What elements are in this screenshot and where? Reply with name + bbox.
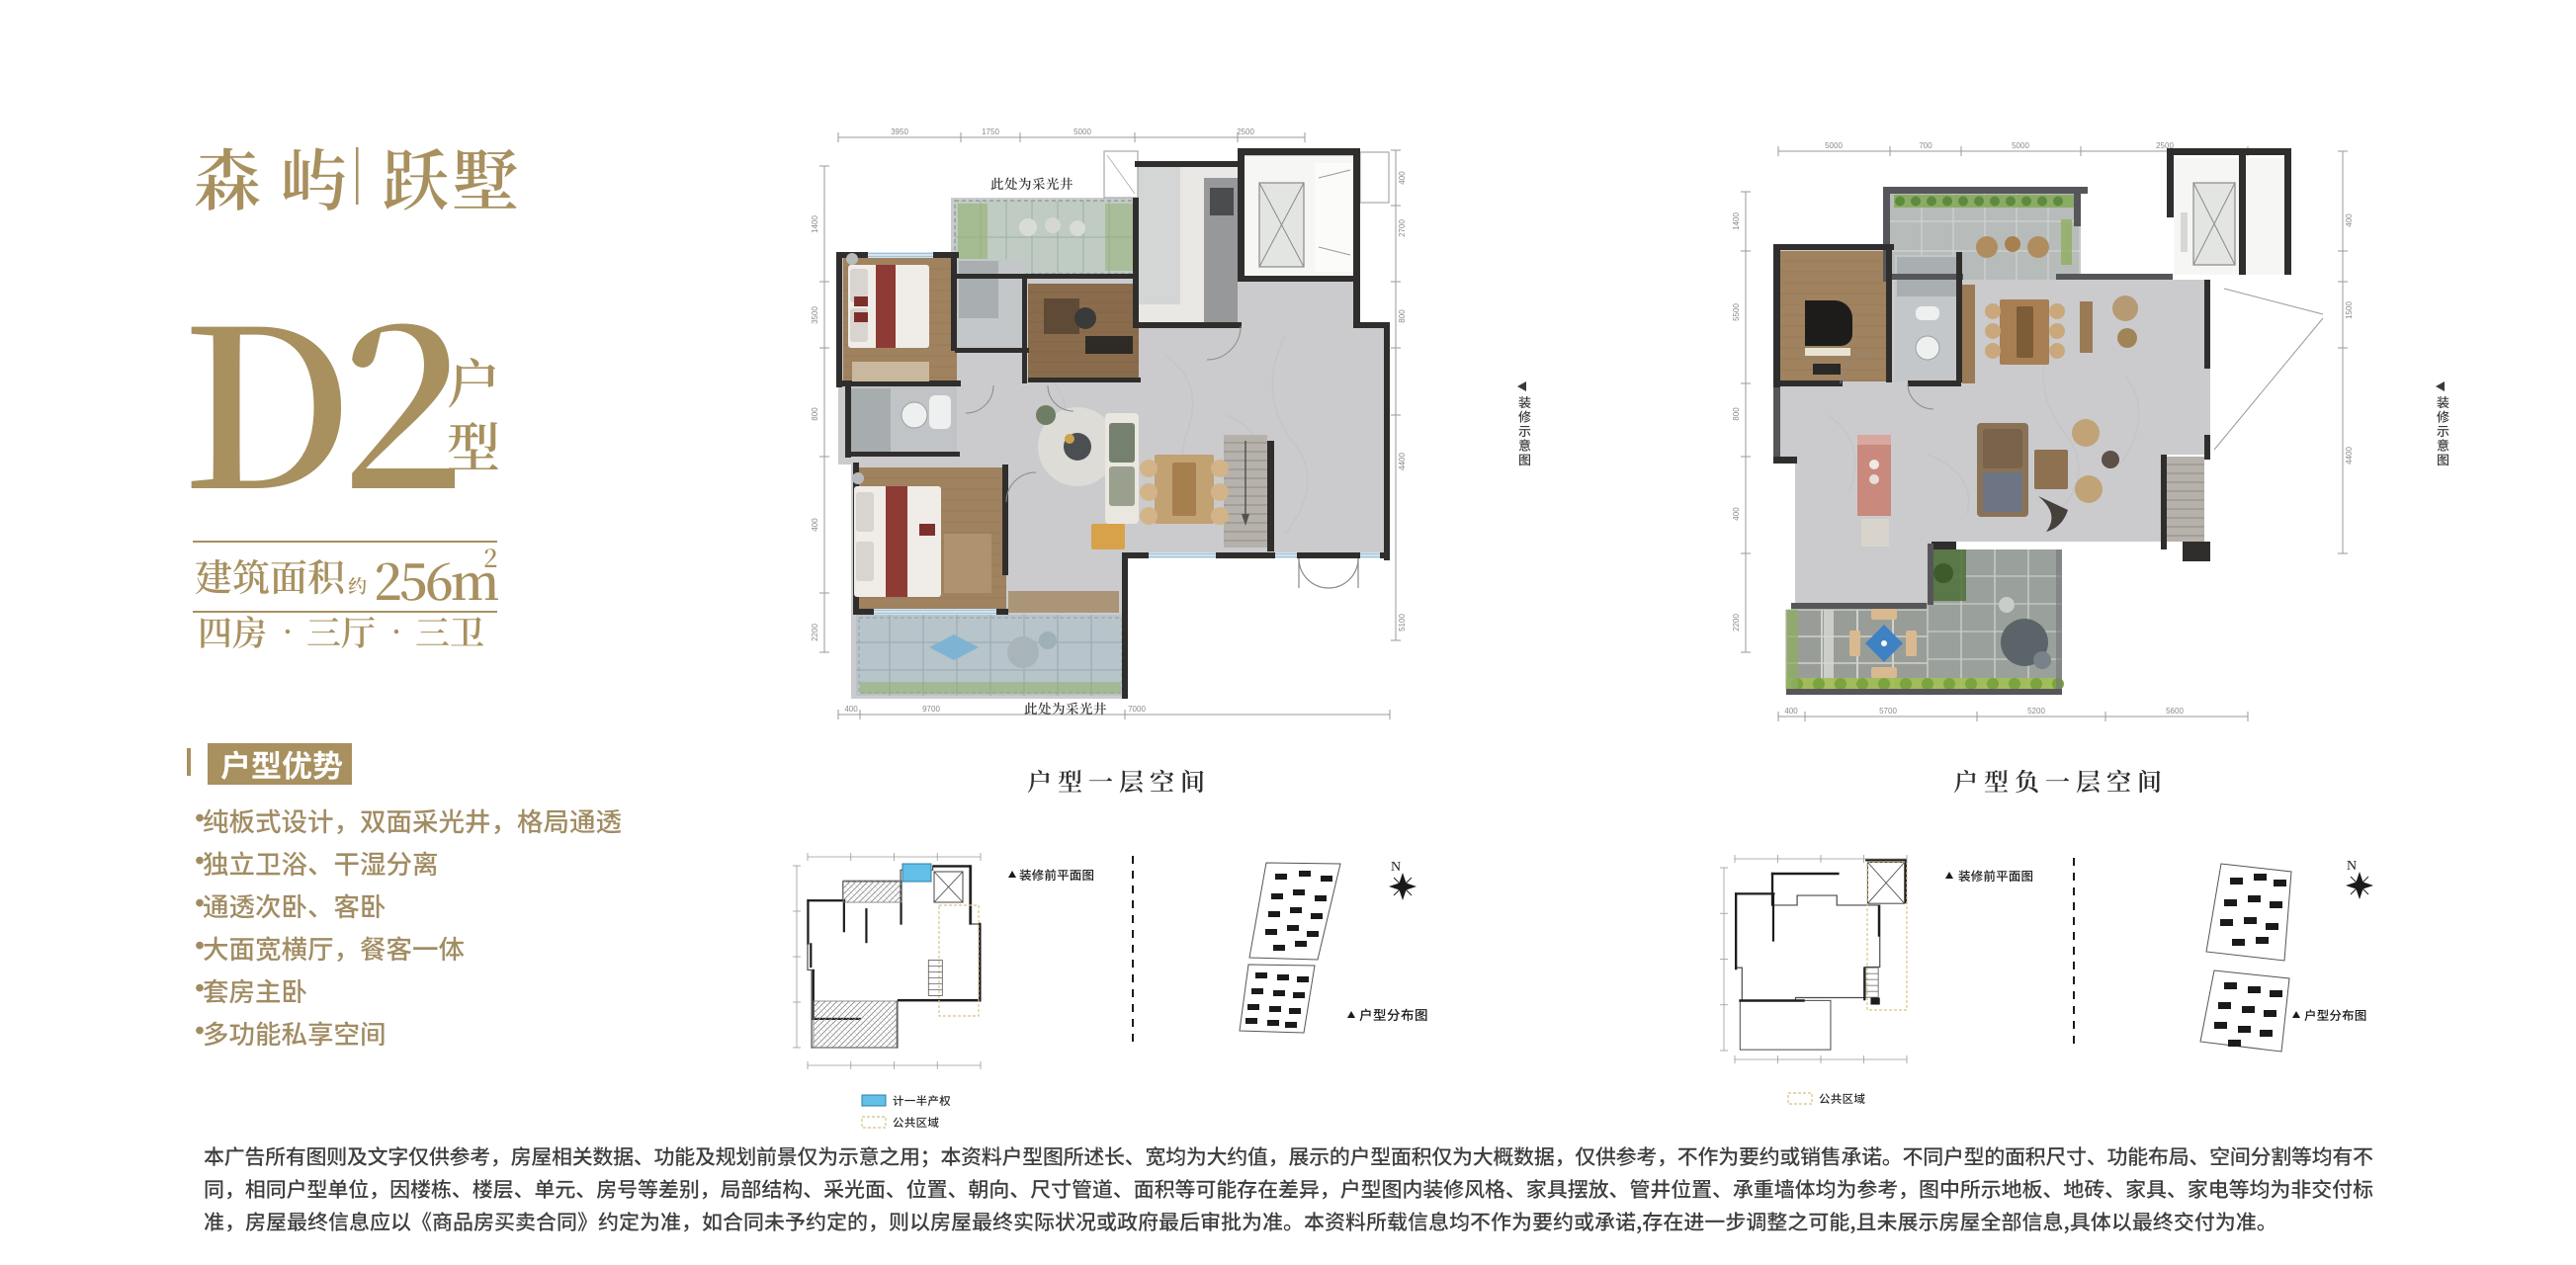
svg-text:N: N	[2347, 859, 2357, 874]
svg-text:400: 400	[1732, 507, 1741, 521]
svg-text:2700: 2700	[1398, 219, 1407, 237]
svg-text:9700: 9700	[922, 705, 940, 714]
svg-text:1500: 1500	[2345, 301, 2354, 319]
svg-text:3950: 3950	[891, 127, 908, 136]
svg-text:5200: 5200	[2027, 707, 2045, 716]
svg-text:700: 700	[1919, 141, 1932, 150]
svg-text:5500: 5500	[1732, 303, 1741, 321]
svg-text:400: 400	[2345, 213, 2354, 227]
svg-text:400: 400	[1784, 707, 1798, 716]
svg-text:800: 800	[811, 407, 819, 421]
svg-text:400: 400	[844, 705, 858, 714]
svg-text:2200: 2200	[811, 624, 819, 641]
svg-text:5000: 5000	[1825, 141, 1843, 150]
svg-text:400: 400	[811, 518, 819, 532]
svg-text:800: 800	[1732, 407, 1741, 421]
svg-text:2200: 2200	[1732, 614, 1741, 632]
svg-text:5000: 5000	[2012, 141, 2029, 150]
svg-text:400: 400	[1398, 171, 1407, 185]
svg-text:4400: 4400	[2345, 447, 2354, 464]
svg-text:5700: 5700	[1879, 707, 1897, 716]
svg-text:5600: 5600	[2166, 707, 2184, 716]
svg-text:3500: 3500	[811, 306, 819, 324]
svg-text:7000: 7000	[1128, 705, 1146, 714]
svg-text:5100: 5100	[1398, 614, 1407, 632]
svg-text:2500: 2500	[1237, 127, 1254, 136]
svg-text:N: N	[1391, 860, 1401, 875]
svg-text:1400: 1400	[1732, 212, 1741, 230]
svg-text:1750: 1750	[982, 127, 999, 136]
svg-text:5000: 5000	[1073, 127, 1091, 136]
svg-text:4400: 4400	[1398, 453, 1407, 470]
svg-text:800: 800	[1398, 309, 1407, 323]
svg-text:1400: 1400	[811, 215, 819, 233]
